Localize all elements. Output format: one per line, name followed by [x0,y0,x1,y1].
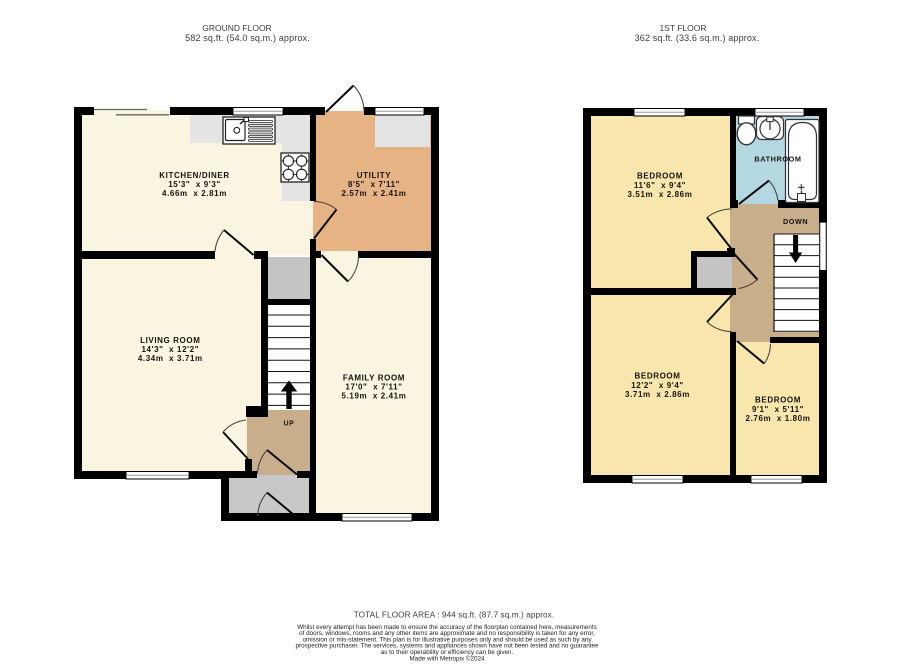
svg-text:11'6" x 9'4": 11'6" x 9'4" [634,181,686,190]
svg-text:2.57m x 2.41m: 2.57m x 2.41m [342,189,407,198]
svg-text:1ST FLOOR: 1ST FLOOR [659,23,706,33]
svg-text:LIVING ROOM: LIVING ROOM [140,336,200,345]
svg-text:17'0" x 7'11": 17'0" x 7'11" [345,383,402,392]
svg-text:UP: UP [284,421,295,428]
svg-text:4.66m x 2.81m: 4.66m x 2.81m [162,189,227,198]
svg-text:UTILITY: UTILITY [357,171,391,180]
svg-text:BATHROOM: BATHROOM [754,155,801,164]
svg-text:582 sq.ft. (54.0 sq.m.) approx: 582 sq.ft. (54.0 sq.m.) approx. [185,33,310,43]
svg-text:5.19m x 2.41m: 5.19m x 2.41m [342,392,407,401]
svg-text:12'2" x 9'4": 12'2" x 9'4" [631,381,684,390]
svg-text:2.76m x 1.80m: 2.76m x 1.80m [746,414,811,423]
svg-text:BEDROOM: BEDROOM [635,372,681,381]
svg-text:4.34m x 3.71m: 4.34m x 3.71m [138,354,203,363]
svg-text:DOWN: DOWN [783,217,808,226]
svg-text:8'5" x 7'11": 8'5" x 7'11" [348,180,400,189]
svg-text:362 sq.ft. (33.6 sq.m.) approx: 362 sq.ft. (33.6 sq.m.) approx. [635,33,760,43]
svg-text:3.51m x 2.86m: 3.51m x 2.86m [628,190,693,199]
svg-text:TOTAL FLOOR AREA : 944 sq.ft.: TOTAL FLOOR AREA : 944 sq.ft. (87.7 sq.m… [354,611,555,620]
svg-text:FAMILY ROOM: FAMILY ROOM [343,373,405,382]
svg-text:9'1" x 5'11": 9'1" x 5'11" [752,405,804,414]
svg-text:GROUND FLOOR: GROUND FLOOR [202,23,271,33]
svg-text:KITCHEN/DINER: KITCHEN/DINER [159,171,229,180]
svg-text:3.71m x 2.86m: 3.71m x 2.86m [625,390,690,399]
svg-text:BEDROOM: BEDROOM [755,396,801,405]
svg-text:BEDROOM: BEDROOM [637,172,683,181]
svg-text:14'3" x 12'2": 14'3" x 12'2" [141,345,199,354]
svg-text:Made with Metropix ©2024: Made with Metropix ©2024 [410,654,485,662]
svg-text:15'3" x 9'3": 15'3" x 9'3" [168,180,221,189]
